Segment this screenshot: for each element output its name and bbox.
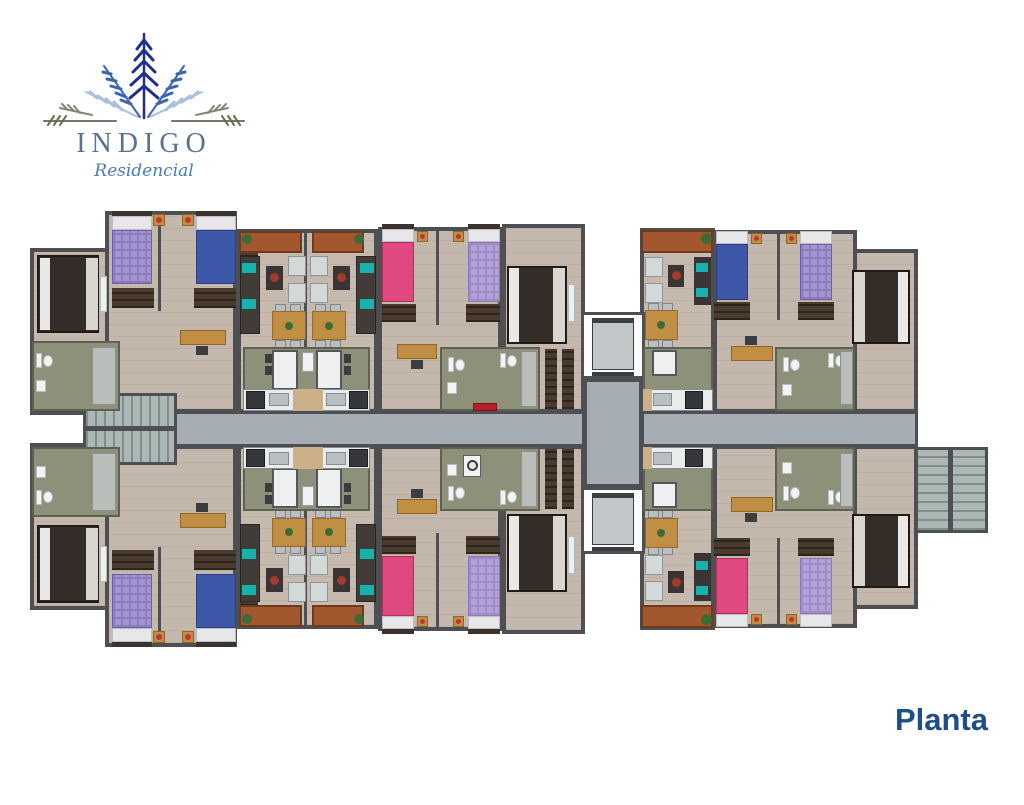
wardrobe: [112, 288, 154, 308]
armchair: [310, 555, 328, 575]
wardrobe: [382, 304, 416, 322]
bed-bench: [100, 276, 107, 312]
dining-chair: [648, 510, 659, 518]
dishwasher: [302, 486, 314, 506]
sink: [782, 462, 792, 474]
desk: [180, 513, 226, 528]
sink: [447, 464, 457, 476]
plant: [285, 528, 293, 536]
bed-bench: [568, 284, 575, 322]
sink: [36, 380, 46, 392]
sofa-pillow: [360, 585, 374, 595]
stove: [246, 449, 265, 467]
table-decor: [672, 271, 681, 280]
wardrobe: [714, 302, 750, 320]
bed-blue: [196, 574, 236, 628]
bed-purple: [800, 244, 832, 300]
plant: [325, 528, 333, 536]
armchair: [645, 581, 663, 601]
bed-pillow: [898, 516, 908, 586]
plant: [325, 322, 333, 330]
washer-drum: [467, 460, 478, 471]
bench-red: [473, 403, 497, 411]
armchair: [288, 555, 306, 575]
plant: [242, 614, 252, 624]
armchair: [645, 555, 663, 575]
kitchen-island: [316, 350, 342, 390]
sink: [36, 466, 46, 478]
shower: [521, 351, 537, 407]
wardrobe: [798, 538, 834, 556]
bed-lavender: [800, 558, 832, 614]
wall: [436, 533, 439, 631]
elevator-door: [592, 372, 634, 376]
kitchen-island: [652, 350, 677, 376]
bed-pillow: [898, 272, 908, 342]
armchair: [310, 582, 328, 602]
lamp: [420, 619, 425, 624]
dining-chair: [330, 510, 341, 518]
dining-chair: [290, 546, 301, 554]
bed-pillow: [382, 229, 414, 242]
sofa-pillow: [242, 585, 256, 595]
plant: [354, 614, 364, 624]
bed-pillow: [716, 614, 748, 627]
bed-headboard: [112, 642, 152, 647]
stool: [265, 354, 272, 363]
table-decor: [337, 576, 346, 585]
desk-chair: [745, 336, 757, 345]
wardrobe: [112, 550, 154, 570]
plant: [701, 614, 712, 625]
bed-pillow: [196, 628, 236, 642]
elevator-lobby: [584, 379, 642, 487]
sofa-pillow: [696, 288, 708, 297]
bed-pillow: [40, 528, 50, 600]
bed-purple: [112, 574, 152, 628]
table-decor: [337, 273, 346, 282]
lamp: [754, 617, 759, 622]
counter-wood: [293, 447, 323, 469]
wardrobe: [714, 538, 750, 556]
bed-pillow: [112, 628, 152, 642]
bed-pillow: [468, 229, 500, 242]
sofa-pillow: [696, 586, 708, 595]
logo-subtitle: Residencial: [34, 161, 254, 181]
bed-blue: [716, 244, 748, 300]
sofa-pillow: [696, 561, 708, 570]
toilet: [500, 490, 506, 505]
bed-bench: [100, 546, 107, 582]
lamp: [789, 617, 794, 622]
bed-fold: [854, 516, 865, 586]
stove: [685, 391, 703, 409]
dining-chair: [662, 510, 673, 518]
bed-pink: [716, 558, 748, 614]
toilet: [790, 359, 800, 371]
desk: [397, 499, 437, 514]
wardrobe: [466, 536, 500, 554]
toilet: [448, 486, 454, 501]
bed-fold: [86, 258, 98, 330]
armchair: [288, 256, 306, 276]
plant: [242, 234, 252, 244]
lamp: [420, 234, 425, 239]
bed-pillow: [468, 616, 500, 629]
shower: [840, 351, 853, 405]
bed-pillow: [800, 231, 832, 244]
bed-pillow: [196, 216, 236, 230]
toilet: [500, 353, 506, 368]
table-decor: [270, 273, 279, 282]
bed-pillow: [40, 258, 50, 330]
bed-blue: [196, 230, 236, 284]
bed-fold: [553, 268, 565, 342]
bed-lavender: [468, 242, 500, 302]
bed-pink: [382, 556, 414, 616]
bed-pillow: [382, 616, 414, 629]
wardrobe: [194, 288, 236, 308]
desk-chair: [745, 513, 757, 522]
stool: [265, 366, 272, 375]
toilet: [43, 491, 53, 503]
counter-wood: [643, 447, 652, 469]
elevator-door: [592, 547, 634, 551]
bed-fold: [553, 516, 565, 590]
table-decor: [270, 576, 279, 585]
stool: [344, 354, 351, 363]
stairs-left-rail: [86, 426, 174, 431]
stove: [349, 391, 368, 409]
shower: [92, 347, 116, 405]
wardrobe: [382, 536, 416, 554]
kitchen-sink: [653, 452, 672, 465]
kitchen-sink: [269, 393, 289, 406]
kitchen-island: [272, 468, 298, 508]
kitchen-island: [272, 350, 298, 390]
armchair: [645, 257, 663, 277]
sofa-pillow: [360, 299, 374, 309]
elevator-door: [592, 493, 634, 497]
shower: [840, 453, 853, 507]
stove: [246, 391, 265, 409]
bed-pink: [382, 242, 414, 302]
wall: [777, 230, 780, 320]
toilet: [828, 353, 834, 368]
bed-headboard: [112, 211, 152, 216]
desk-chair: [411, 489, 423, 498]
sofa-pillow: [242, 549, 256, 559]
bed-lavender: [468, 556, 500, 616]
dining-chair: [290, 510, 301, 518]
dining-chair: [275, 510, 286, 518]
kitchen-sink: [326, 452, 346, 465]
dining-chair: [315, 546, 326, 554]
stairs-right-rail: [948, 450, 953, 530]
plant: [657, 321, 665, 329]
bed-pillow: [509, 268, 519, 342]
armchair: [310, 256, 328, 276]
stool: [265, 483, 272, 492]
desk-chair: [196, 503, 208, 512]
sofa-pillow: [360, 263, 374, 273]
toilet: [455, 359, 465, 371]
sofa-pillow: [242, 299, 256, 309]
closet: [562, 449, 574, 509]
brand-logo: INDIGO Residencial: [34, 18, 254, 181]
elevator-door: [592, 318, 634, 322]
toilet: [43, 355, 53, 367]
kitchen-sink: [326, 393, 346, 406]
wall: [777, 538, 780, 628]
sofa-pillow: [242, 263, 256, 273]
desk-chair: [196, 346, 208, 355]
closet: [545, 449, 557, 509]
bed-headboard: [382, 629, 414, 634]
lamp: [789, 236, 794, 241]
desk: [731, 346, 773, 361]
kitchen-sink: [269, 452, 289, 465]
lamp: [156, 217, 162, 223]
lamp: [456, 234, 461, 239]
bed-pillow: [509, 516, 519, 590]
wardrobe: [798, 302, 834, 320]
sink: [447, 382, 457, 394]
dining-chair: [315, 510, 326, 518]
armchair: [310, 283, 328, 303]
bed-pillow: [716, 231, 748, 244]
bed-headboard: [468, 629, 500, 634]
lamp: [754, 236, 759, 241]
armchair: [288, 283, 306, 303]
wardrobe: [466, 304, 500, 322]
shower: [521, 451, 537, 507]
dining-chair: [648, 547, 659, 555]
wall: [158, 211, 161, 311]
armchair: [645, 283, 663, 303]
logo-title: INDIGO: [34, 128, 254, 160]
closet: [545, 349, 557, 409]
bed-purple: [112, 230, 152, 284]
stool: [344, 366, 351, 375]
bed-headboard: [196, 211, 236, 216]
plant: [285, 322, 293, 330]
dining-chair: [275, 546, 286, 554]
stool: [265, 495, 272, 504]
bed-headboard: [468, 224, 500, 229]
page: INDIGO Residencial Planta: [0, 0, 1024, 805]
shower: [92, 453, 116, 511]
plant: [354, 234, 364, 244]
counter-wood: [293, 389, 323, 411]
lamp: [156, 634, 162, 640]
toilet: [36, 353, 42, 368]
stool: [344, 483, 351, 492]
lamp: [456, 619, 461, 624]
plant: [657, 529, 665, 537]
sink: [782, 384, 792, 396]
lamp: [185, 217, 191, 223]
toilet: [783, 357, 789, 372]
kitchen-sink: [653, 393, 672, 406]
kitchen-island: [652, 482, 677, 508]
desk-chair: [411, 360, 423, 369]
stove: [349, 449, 368, 467]
bed-fold: [86, 528, 98, 600]
bed-headboard: [382, 224, 414, 229]
kitchen-island: [316, 468, 342, 508]
elevator-car: [592, 322, 634, 370]
desk: [180, 330, 226, 345]
sofa-pillow: [360, 549, 374, 559]
bed-pillow: [800, 614, 832, 627]
dishwasher: [302, 352, 314, 372]
dining-chair: [662, 547, 673, 555]
toilet: [507, 491, 517, 503]
bed-headboard: [196, 642, 236, 647]
lamp: [185, 634, 191, 640]
wardrobe: [194, 550, 236, 570]
dining-chair: [330, 546, 341, 554]
bed-pillow: [112, 216, 152, 230]
sofa-pillow: [696, 263, 708, 272]
toilet: [828, 490, 834, 505]
counter-wood: [643, 389, 652, 411]
toilet: [790, 487, 800, 499]
toilet: [783, 486, 789, 501]
toilet: [455, 487, 465, 499]
logo-leaves-icon: [34, 18, 254, 126]
desk: [397, 344, 437, 359]
toilet: [36, 490, 42, 505]
elevator-car: [592, 497, 634, 545]
corridor: [641, 411, 918, 447]
armchair: [288, 582, 306, 602]
stool: [344, 495, 351, 504]
bed-bench: [568, 536, 575, 574]
wall: [436, 227, 439, 325]
plant: [701, 233, 712, 244]
desk: [731, 497, 773, 512]
stove: [685, 449, 703, 467]
toilet: [507, 355, 517, 367]
plan-caption: Planta: [895, 702, 988, 738]
bed-fold: [854, 272, 865, 342]
toilet: [448, 357, 454, 372]
table-decor: [672, 578, 681, 587]
closet: [562, 349, 574, 409]
